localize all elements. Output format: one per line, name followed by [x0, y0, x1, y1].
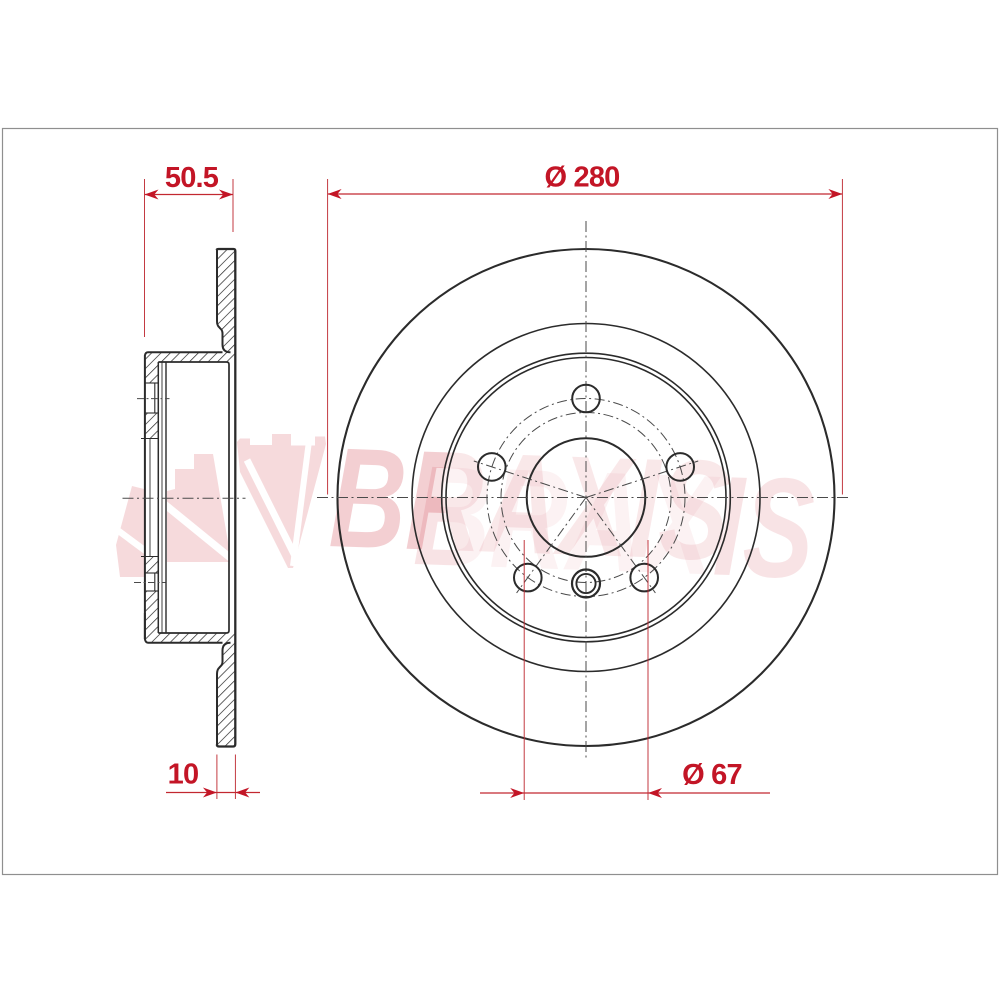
svg-text:10: 10	[168, 759, 199, 791]
svg-text:Ø 67: Ø 67	[682, 759, 742, 791]
svg-text:Ø 280: Ø 280	[545, 162, 620, 194]
svg-text:50.5: 50.5	[165, 162, 219, 194]
